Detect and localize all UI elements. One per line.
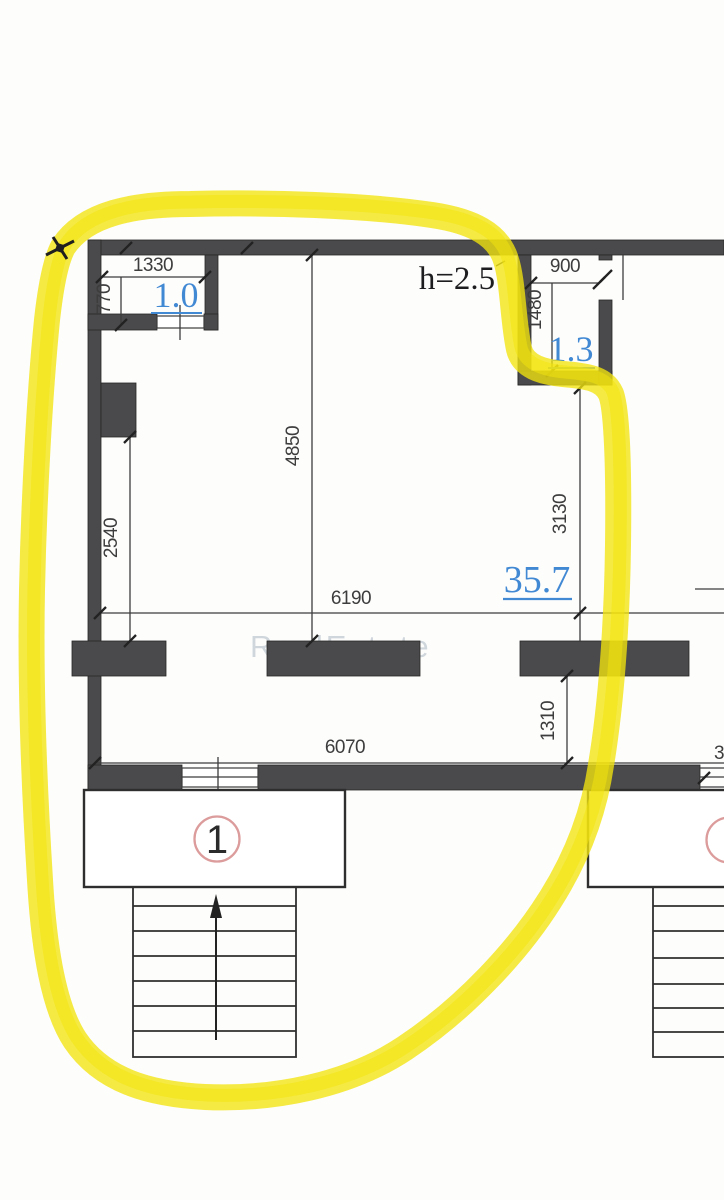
entrance-number: 1 (206, 818, 228, 862)
dim-6070: 6070 (325, 737, 365, 758)
area-vestibule: 1.0 (154, 275, 199, 315)
wall-vestibule-bottom-right (204, 314, 218, 330)
dim-3130: 3130 (550, 494, 571, 534)
dim-2540: 2540 (101, 518, 122, 558)
pier-left-cross (72, 641, 166, 676)
dim-1310: 1310 (538, 701, 559, 741)
porch-right (588, 790, 724, 887)
pier-middle (267, 641, 420, 676)
floor-plan-photo: RealEstate (0, 0, 724, 1200)
dim-4850: 4850 (283, 426, 304, 466)
wall-top (90, 240, 724, 255)
dim-770: 770 (94, 284, 115, 314)
wall-bottom-left (88, 765, 182, 790)
wall-bathroom-right-top (599, 255, 612, 260)
wall-bottom-right (258, 765, 700, 790)
dim-900: 900 (550, 256, 580, 277)
dim-neighbor-partial: 3 (714, 743, 724, 764)
ceiling-height-note: h=2.5 (419, 261, 495, 297)
floor-plan-drawing: RealEstate (0, 0, 724, 1200)
wall-pilaster (101, 383, 136, 437)
dim-6190: 6190 (331, 588, 371, 609)
dim-1330: 1330 (133, 255, 173, 276)
area-main-room: 35.7 (504, 559, 571, 601)
